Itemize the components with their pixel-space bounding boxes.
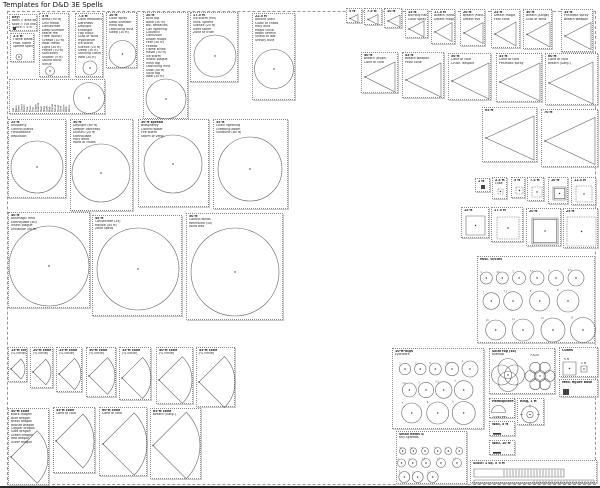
template-shape xyxy=(527,209,562,247)
circle-size-label: 11 xyxy=(512,318,515,321)
box-label: 45 ftBreath weaponPolar cone xyxy=(405,54,443,64)
circle-size-label: 13 xyxy=(571,317,574,320)
box-label: 70 ft xyxy=(544,111,597,114)
cone-20ft-box: 20 ftBreath (Med.)Detect evil xyxy=(460,9,485,46)
box-title: 15 ft xyxy=(464,209,488,212)
box-label-line: Sunburst (80 ft) xyxy=(216,131,287,134)
radius-25ft-box: 25 ftAntipathyControl plantsForbiddanceR… xyxy=(8,119,66,198)
box-label-line: 1 inch = 5 ft xyxy=(12,26,36,29)
template-shape xyxy=(462,208,490,239)
radius-35ft-box: 35 ftChain lightningCreeping doomSunburs… xyxy=(213,119,288,209)
box-label-line: Silver dragon xyxy=(11,441,48,444)
wall-10ft-box: Wall, 10 ft xyxy=(489,440,515,455)
radius-2ft-box: 2.5 ftFlame bladeProd. flameSphere spell… xyxy=(10,33,34,62)
cone-15ft-box: 15 ftBurning handsColor spray xyxy=(405,9,428,38)
box-label: 22.5 ftAntilife shellCloak of chaosHoly … xyxy=(255,15,294,42)
radius-50ft-box: 50 ftControl windsWhirlwind (10)Wind wal… xyxy=(186,213,283,320)
box-label: 10 ft xyxy=(387,10,401,13)
box-label: 7.5 ft xyxy=(367,10,381,13)
box-label-line: (¼ circle) xyxy=(11,352,26,355)
square-1ft-box: 1 ft xyxy=(475,178,490,192)
overlap-circles-box: 7-foldSolid fog (x4)overlap xyxy=(489,348,555,394)
cone-50ft-box: 50 ftCone of coldCrush. despair xyxy=(448,53,491,100)
box-label-line: Wind wall xyxy=(189,225,282,228)
qcone-65ft-box: 65-ft coneBreath (Garg.) xyxy=(150,408,201,479)
box-label: 17.5 ft xyxy=(494,209,522,212)
square-15ft-box: 15 ft xyxy=(461,207,489,238)
qcone-25ft-box: 25-ft cone(¼ circle) xyxy=(56,347,82,392)
template-shape xyxy=(492,208,524,243)
page-title: Templates for D&D 3E Spells xyxy=(3,1,103,9)
box-label-line: Repulsion xyxy=(11,135,65,138)
box-title: 17.5 ft xyxy=(494,209,522,212)
circle-size-label: 8 xyxy=(530,290,532,293)
box-label: 45-ft cone(¼ circle) xyxy=(199,349,234,356)
template-shape xyxy=(564,209,599,249)
box-label: 50 ftControl windsWhirlwind (10)Wind wal… xyxy=(189,215,282,229)
name-strip-box: AidBaneBlessChantDoomFearFlareFogGlyphGu… xyxy=(9,79,105,114)
circle-size-label: 5.5 xyxy=(435,381,439,384)
qcone-45ft-box: 45-ft cone(¼ circle) xyxy=(196,347,235,407)
box-label-line: Cone of cold xyxy=(364,61,397,64)
spread-30ft-box: 30 ft spreadBlasphemyControl waterFire s… xyxy=(138,119,209,207)
box-label: 5 ft xyxy=(514,179,524,182)
radius-45ft-box: 45 ftConsecrate (2x)Hallow (40 ft)Zone s… xyxy=(92,215,182,316)
box-label-line: overlap xyxy=(492,353,554,356)
key-box: Key:dash = area edgesolid = cut line1 in… xyxy=(9,14,37,31)
circle-size-label: 6.5 xyxy=(568,269,572,272)
box-label: 65-ft coneBreath (Garg.) xyxy=(153,410,200,417)
box-label-line: Sphere spells xyxy=(13,45,33,48)
figure-base-box: Med. figure base xyxy=(559,379,598,397)
box-title: Misc. circles xyxy=(480,258,594,261)
template-shape xyxy=(151,409,202,480)
radius-40ft-box: 40 ftAntimagic fieldEarthquake (80)Insec… xyxy=(8,212,90,308)
cylinders-box: 22.533.544.555.5678910-ft-highcylinders xyxy=(392,348,484,429)
radius-17ft-box: 17.5 ftIce storm (full)Invis. sphereSile… xyxy=(190,12,238,82)
box-label: 15-ft cone(¼ circle) xyxy=(11,349,26,356)
cone-35ft-box: 35 ftPrismatic sprayBreath weapon xyxy=(561,9,593,52)
square-5ft-box: 5 ft xyxy=(511,177,525,198)
box-label: 25 ftAntipathyControl plantsForbiddanceR… xyxy=(11,121,65,138)
square-10ft-box: 10 ft xyxy=(548,177,568,204)
box-label: 10 ft xyxy=(551,179,567,182)
box-label: 60 ftCone of coldBreath (Garg.) xyxy=(548,55,597,65)
cone-25ft-box: 25 ftDetect magicFear cone xyxy=(491,9,520,48)
box-label: 10-ft-highcylinders xyxy=(395,350,483,357)
box-title: 5 ft xyxy=(349,10,361,13)
template-shape xyxy=(54,408,96,474)
circle-size-label: 9 xyxy=(452,401,454,404)
box-label: 25 ftDetect magicFear cone xyxy=(494,11,519,21)
cubes-box: 5 ft1 ftCubes xyxy=(559,347,598,377)
box-label: 40 ftBreath (Huge)Cone of cold xyxy=(364,54,397,64)
qcone-30ft-box: 30-ft cone(¼ circle) xyxy=(86,347,116,397)
small-items-box: ½½¾¾11111.51.51.5222Small items &tiny sp… xyxy=(396,431,467,484)
box-label: 2.5 ftFlame bladeProd. flameSphere spell… xyxy=(13,35,33,49)
template-shape: 22.533.544.555.56789 xyxy=(393,349,485,430)
box-label-line: Virtue xyxy=(42,63,68,66)
box-label-line: (¼ circle) xyxy=(199,352,234,355)
box-label: 25 ft xyxy=(566,210,597,213)
box-label-line: (¼ circle) xyxy=(122,352,150,355)
template-shape: ½½¾¾11111.51.51.5222 xyxy=(397,432,468,485)
box-label: Ring, 1 ft xyxy=(520,400,543,403)
radius-22ft-box: 22.5 ftAntilife shellCloak of chaosHoly … xyxy=(252,13,295,100)
circle-size-label: ¾ xyxy=(422,447,425,450)
box-label-line: (¼ circle) xyxy=(159,352,192,355)
square-12ft-box: 12.5 ft xyxy=(571,177,596,205)
radius-30ft-box: 30 ftDaylight (60 ft)Deeper darknessDict… xyxy=(70,119,133,211)
box-label: 65 ft xyxy=(485,109,536,112)
box-label-line: Zone spells xyxy=(95,227,181,230)
box-label-line: Prismatic spray xyxy=(499,62,541,65)
radius-10ft-box: 10 ftColor sprayDeep slumberMind fogObsc… xyxy=(106,12,137,68)
box-label: 25-ft cone(¼ circle) xyxy=(59,349,81,356)
box-label: 17.5 ftIce storm (full)Invis. sphereSile… xyxy=(193,14,237,34)
box-label: 35 ftChain lightningCreeping doomSunburs… xyxy=(216,121,287,135)
box-label: 12.5 ft xyxy=(574,179,595,182)
box-label-line: Zone of truth xyxy=(193,31,237,34)
box-label-line: Breath weapon xyxy=(564,18,592,21)
box-label: 30 ftBreath (Large)Gust of wind xyxy=(526,11,551,21)
circle-size-label: 4 xyxy=(462,360,464,363)
box-title: Wall, 5 ft xyxy=(492,423,514,426)
box-title: 25 ft xyxy=(566,210,597,213)
circle-size-label: 9 xyxy=(557,289,559,292)
box-title: 5 ft xyxy=(514,179,524,182)
box-label: Scale: 1 sq. = 5 ft xyxy=(473,462,596,465)
shape-label: 1 ft xyxy=(581,361,587,365)
cone-40ft-box: 40 ftBreath (Huge)Cone of cold xyxy=(361,52,398,93)
cone-65ft-box: 65 ft xyxy=(482,107,537,162)
box-label-line: (¼ circle) xyxy=(59,352,81,355)
box-label-line: tiny spreads xyxy=(399,436,466,439)
box-label: 55 ftCone of coldPrismatic spray xyxy=(499,55,541,65)
box-label: 60-ft coneCone of cold xyxy=(102,409,146,416)
box-label-line: Breath (Garg.) xyxy=(153,413,200,416)
box-label-line: Gust of wind xyxy=(526,18,551,21)
box-label: Med. figure base xyxy=(562,381,597,384)
box-label: 20-ft cone(¼ circle) xyxy=(33,349,52,356)
box-label: 50-ft coneBlack dragonBlue dragonBrass d… xyxy=(11,410,48,444)
template-shape xyxy=(157,348,194,405)
template-shape: AidBaneBlessChantDoomFearFlareFogGlyphGu… xyxy=(10,80,106,115)
scale-ruler-box: Scale: 1 sq. = 5 ft xyxy=(470,460,597,483)
square-25ft-box: 25 ft xyxy=(563,208,598,248)
box-label: 50 ftCone of coldCrush. despair xyxy=(451,55,490,65)
template-shape xyxy=(120,348,152,401)
ring-box: Ring, 1 ft xyxy=(517,398,544,425)
cone-7ft-box: 7.5 ft xyxy=(364,8,382,25)
circle-size-label: 6 xyxy=(454,380,456,383)
box-label: Cubes xyxy=(562,349,597,352)
circle-size-label: 5 xyxy=(418,381,420,384)
circle-size-label: 2.5 xyxy=(415,362,419,365)
box-label-line: Detect evil xyxy=(463,18,484,21)
box-title: 12.5 ft xyxy=(574,179,595,182)
box-label: 15 ft xyxy=(464,209,488,212)
square-20ft-box: 20 ft xyxy=(526,208,561,246)
circle-size-label: 6 xyxy=(549,270,551,273)
box-label: 35-ft cone(¼ circle) xyxy=(122,349,150,356)
box-title: 20 ft xyxy=(529,210,560,213)
qcone-55ft-box: 55-ft coneCone of cold xyxy=(53,407,95,473)
qcone-50ft-box: 50-ft coneBlack dragonBlue dragonBrass d… xyxy=(8,408,49,485)
circle-size-label: 7.5 xyxy=(504,291,508,294)
box-label: 2.5 ftcube xyxy=(495,179,506,186)
box-label: Key:dash = area edgesolid = cut line1 in… xyxy=(12,16,36,30)
template-shape xyxy=(187,214,284,321)
box-label: 5 ft xyxy=(349,10,361,13)
circle-size-label: ½ xyxy=(410,446,412,450)
box-label: 40 ftAntimagic fieldEarthquake (80)Insec… xyxy=(11,214,89,231)
box-label-line: Cone of cold xyxy=(102,412,146,415)
box-label: Misc. circles xyxy=(480,258,594,261)
box-label-line: Breath (Garg.) xyxy=(548,62,597,65)
box-title: 7.5 ft xyxy=(530,179,543,182)
box-label: Wall, 5 ft xyxy=(492,423,514,426)
box-title: 1 ft xyxy=(478,180,489,183)
box-label-line: Unholy aura xyxy=(255,39,294,42)
qcone-35ft-box: 35-ft cone(¼ circle) xyxy=(119,347,151,400)
radius-5ft-box: 5 ftBless (50 ft)Chill metalConsecrateDe… xyxy=(39,13,69,77)
cone-60ft-box: 60 ftCone of coldBreath (Garg.) xyxy=(545,53,598,105)
box-label-line: Web (20 ft) xyxy=(78,56,102,59)
circle-size-label: 7 xyxy=(402,402,404,405)
box-label-line: Detect magic xyxy=(434,18,454,21)
box-title: Med. figure base xyxy=(562,381,597,384)
circle-size-label: 8 xyxy=(427,401,429,404)
box-label: Hemisphere xyxy=(492,400,514,403)
shape-label: 5 ft xyxy=(564,357,570,361)
box-label: 55-ft coneCone of cold xyxy=(56,409,94,416)
square-2ft-box: 2.5 ftcube xyxy=(492,177,507,199)
box-label-line: Sleep (10 ft) xyxy=(109,31,136,34)
box-label-line: (¼ circle) xyxy=(33,352,52,355)
box-label: Wall, 10 ft xyxy=(492,442,514,445)
radius-20ft-box: 20 ftAcid fogBane (50 ft)Blk. tentaclesC… xyxy=(143,12,188,119)
box-label: 7.5 ftCalm emotionsDarknessDaylightEntan… xyxy=(78,15,102,59)
box-title: 65 ft xyxy=(485,109,536,112)
radius-7ft-box: 7.5 ftCalm emotionsDarknessDaylightEntan… xyxy=(75,13,103,77)
box-label-line: Crush. despair xyxy=(451,62,490,65)
box-label: 7.5 ft xyxy=(530,179,543,182)
qcone-15ft-box: 15-ft cone(¼ circle) xyxy=(8,347,27,382)
circle-size-label: 3.5 xyxy=(445,361,449,364)
cone-5ft-box: 5 ft xyxy=(346,8,362,23)
template-shape xyxy=(100,408,148,477)
cone-10ft-box: 10 ft xyxy=(384,8,402,28)
template-shape: 44.555.566.577.58910111213 xyxy=(478,257,596,344)
box-title: 10 ft xyxy=(551,179,567,182)
box-label: 45 ftConsecrate (2x)Hallow (40 ft)Zone s… xyxy=(95,217,181,231)
circle-size-label: 5 xyxy=(513,271,515,274)
wall-5ft-box: Wall, 5 ft xyxy=(489,421,515,436)
box-label-line: Unhallow (40 ft) xyxy=(11,228,89,231)
circle-size-label: ¾ xyxy=(434,447,437,450)
cone-45ft-box: 45 ftBreath weaponPolar cone xyxy=(402,52,444,98)
box-label: Small items &tiny spreads xyxy=(399,433,466,440)
misc-circles-box: 44.555.566.577.58910111213Misc. circles xyxy=(477,256,595,343)
cone-17ft-box: 17.5 ftBreath (Small)Detect magic xyxy=(431,9,455,44)
template-shape: 5 ft1 ft xyxy=(560,348,599,378)
circle-size-label: 10 xyxy=(486,319,489,322)
box-label-line: (¼ circle) xyxy=(89,352,115,355)
box-title: 10 ft xyxy=(387,10,401,13)
box-label: 5 ftBless (50 ft)Chill metalConsecrateDe… xyxy=(42,15,68,66)
box-label: 20 ftAcid fogBane (50 ft)Blk. tentaclesC… xyxy=(146,14,187,79)
square-7ft-box: 7.5 ft xyxy=(527,177,544,201)
template-shape xyxy=(483,108,538,163)
cone-55ft-box: 55 ftCone of coldPrismatic spray xyxy=(496,53,542,102)
box-label: 40-ft cone(¼ circle) xyxy=(159,349,192,356)
box-label-line: cube xyxy=(495,182,506,185)
box-label-line: Polar cone xyxy=(405,61,443,64)
circle-size-label: 4.5 xyxy=(496,271,500,274)
box-label-line: Web (20 ft) xyxy=(146,75,187,78)
hemisphere-box: cross-sec.Hemisphere xyxy=(489,398,515,418)
box-label: 1 ft xyxy=(478,180,489,183)
template-shape xyxy=(542,110,599,168)
circle-size-label: ½ xyxy=(400,446,402,450)
cone-30ft-box: 30 ftBreath (Large)Gust of wind xyxy=(523,9,552,49)
box-title: 7.5 ft xyxy=(367,10,381,13)
box-title: Ring, 1 ft xyxy=(520,400,543,403)
shape-label: cross-sec. xyxy=(493,415,508,419)
box-label-line: Word of chaos xyxy=(73,141,132,144)
box-label-line: Fear cone xyxy=(494,18,519,21)
template-shape xyxy=(197,348,236,408)
square-17ft-box: 17.5 ft xyxy=(491,207,523,242)
box-label: 20 ft xyxy=(529,210,560,213)
qcone-40ft-box: 40-ft cone(¼ circle) xyxy=(156,347,193,404)
box-label: 35 ftPrismatic sprayBreath weapon xyxy=(564,11,592,21)
template-shape xyxy=(93,216,183,317)
box-label: 30 ft spreadBlasphemyControl waterFire s… xyxy=(141,121,208,138)
box-title: Hemisphere xyxy=(492,400,514,403)
circle-size-label: 12 xyxy=(541,317,544,320)
rotated-spell-name: Word xyxy=(67,105,71,112)
box-title: Scale: 1 sq. = 5 ft xyxy=(473,462,596,465)
circle-size-label: 5.5 xyxy=(530,270,534,273)
box-title: Cubes xyxy=(562,349,597,352)
box-label-line: Storm of veng. xyxy=(141,135,208,138)
box-label: 15 ftBurning handsColor spray xyxy=(408,11,427,21)
circle-size-label: 1.5 xyxy=(422,458,426,461)
box-label: 30-ft cone(¼ circle) xyxy=(89,349,115,356)
qcone-20ft-box: 20-ft cone(¼ circle) xyxy=(30,347,53,388)
circle-size-label: 7 xyxy=(483,292,485,295)
circle-size-label: 4.5 xyxy=(402,382,406,385)
box-label-line: Color spray xyxy=(408,18,427,21)
box-label: 10 ftColor sprayDeep slumberMind fogObsc… xyxy=(109,14,136,34)
box-label: 17.5 ftBreath (Small)Detect magic xyxy=(434,11,454,21)
qcone-60ft-box: 60-ft coneCone of cold xyxy=(99,407,147,476)
circle-size-label: 1.5 xyxy=(437,458,441,461)
box-label-line: cylinders xyxy=(395,353,483,356)
cone-70ft-box: 70 ft xyxy=(541,109,598,167)
box-label: 20 ftBreath (Med.)Detect evil xyxy=(463,11,484,21)
circle-size-label: 1.5 xyxy=(453,458,457,461)
box-title: 70 ft xyxy=(544,111,597,114)
box-title: Wall, 10 ft xyxy=(492,442,514,445)
box-label: 30 ftDaylight (60 ft)Deeper darknessDict… xyxy=(73,121,132,145)
box-label-line: Cone of cold xyxy=(56,412,94,415)
box-label: Solid fog (x4)overlap xyxy=(492,350,554,357)
